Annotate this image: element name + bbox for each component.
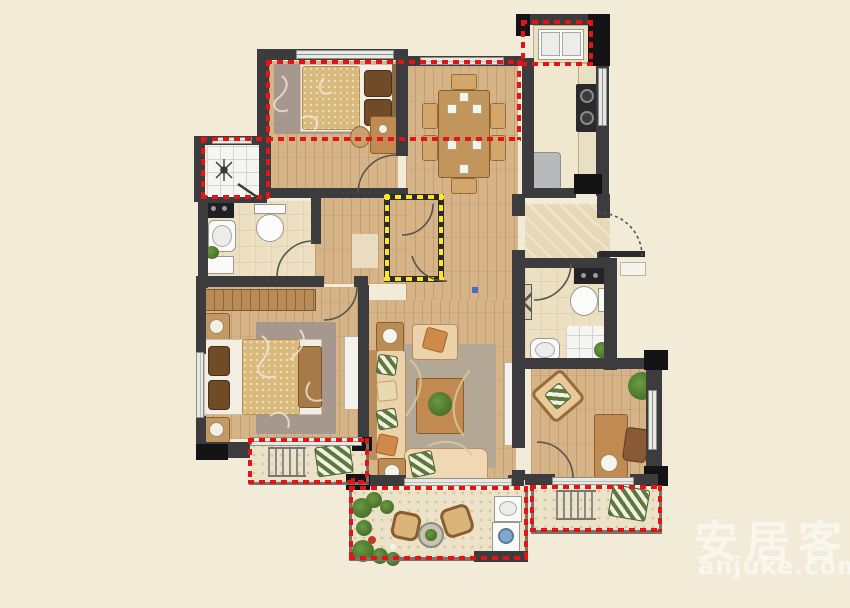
rug-swirl [320, 78, 332, 94]
floorplan-image[interactable]: 安居客 anjuke.com [0, 0, 850, 608]
watermark-domain: anjuke.com [698, 552, 850, 580]
door-arc-bedroom-2 [358, 155, 396, 193]
rug-swirl [306, 382, 322, 401]
rug-swirl [454, 370, 470, 436]
rug-swirl [302, 116, 317, 130]
door-arc-hall-2 [412, 256, 447, 281]
rug-swirl [406, 360, 421, 416]
rug-swirl [428, 442, 472, 456]
rug-swirl [270, 413, 289, 428]
rug-swirl [258, 336, 276, 377]
door-arc-hall [402, 204, 433, 235]
door-arc-study [537, 442, 573, 478]
door-arc-entry [599, 213, 642, 256]
shower-squeegee [238, 184, 257, 197]
shower-head-icon [216, 159, 232, 181]
rug-swirl [290, 330, 304, 360]
door-arc-master [324, 287, 357, 320]
door-arc-bathroom-1 [277, 241, 313, 277]
door-arc-bathroom-2 [534, 263, 571, 300]
rug-swirl [274, 76, 288, 111]
